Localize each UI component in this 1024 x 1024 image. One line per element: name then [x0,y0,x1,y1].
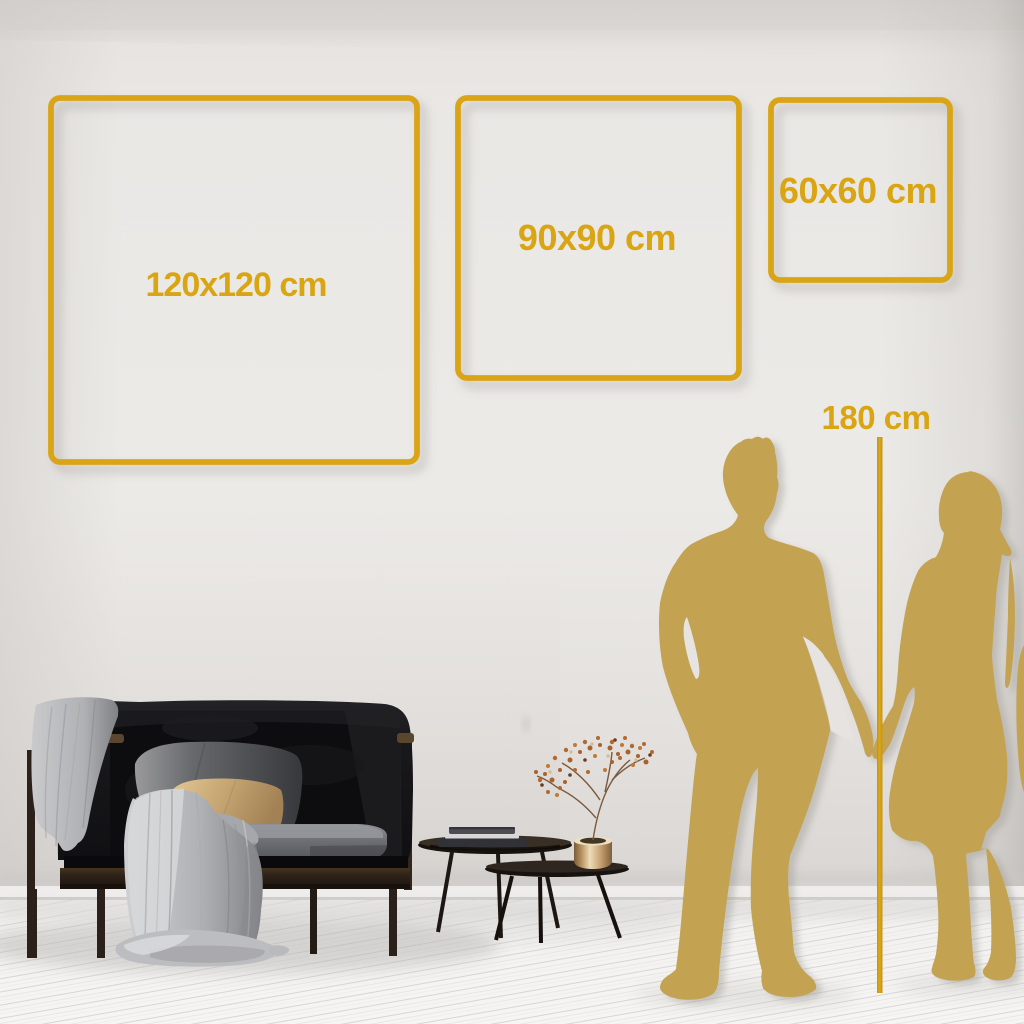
svg-text:120x120 cm: 120x120 cm [146,266,327,304]
svg-text:180 cm: 180 cm [822,399,931,436]
svg-text:60x60 cm: 60x60 cm [779,170,937,211]
svg-text:90x90 cm: 90x90 cm [518,217,676,258]
